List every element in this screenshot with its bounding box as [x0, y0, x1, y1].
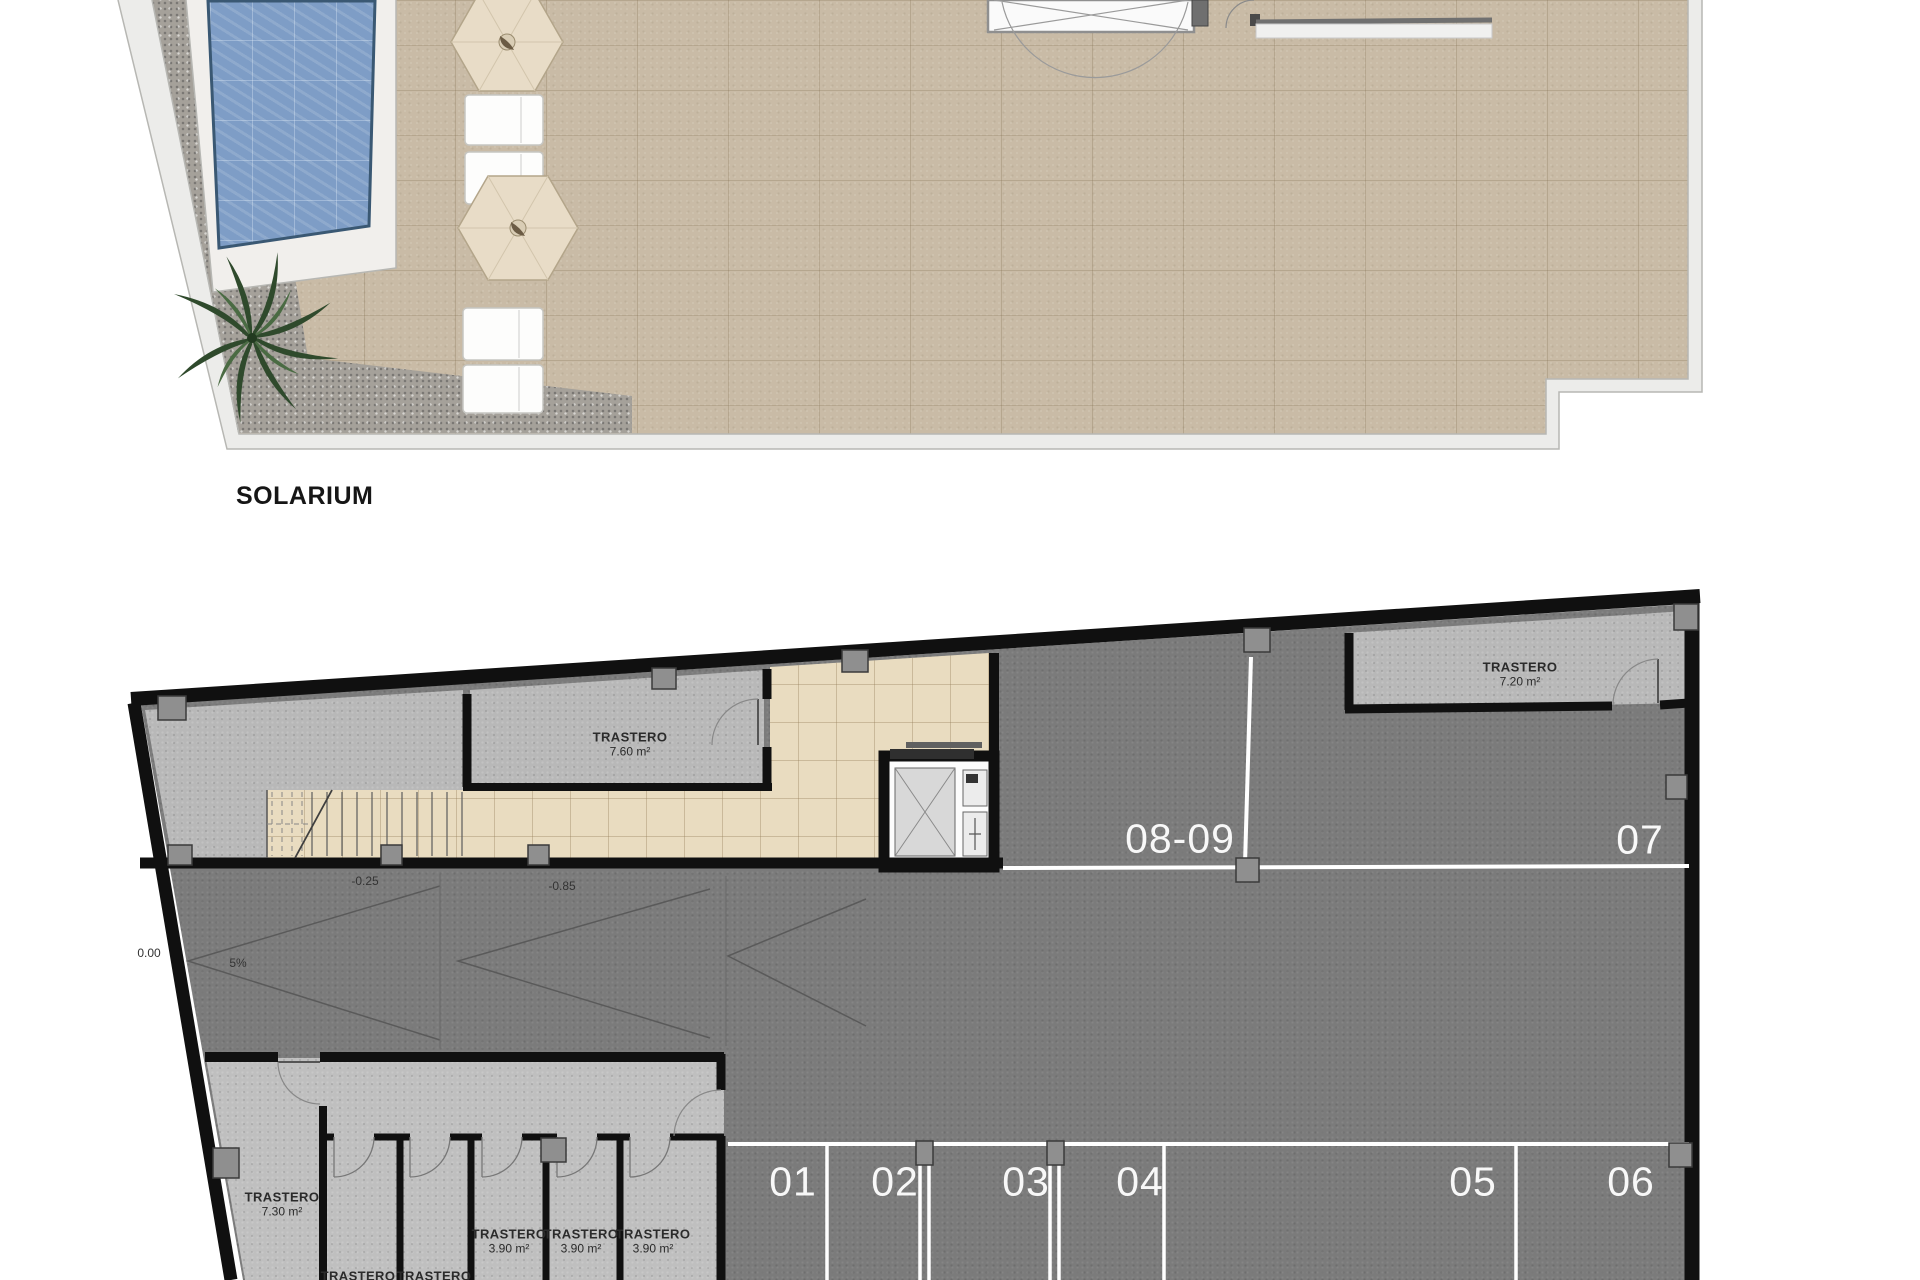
label-trastero-small-1: TRASTERO — [321, 1269, 396, 1280]
label-trastero-390-2: TRASTERO 3.90 m² — [544, 1227, 619, 1256]
stall-02-label: 02 — [871, 1159, 919, 1206]
stairs-icon — [267, 790, 462, 858]
stall-07-label: 07 — [1616, 817, 1664, 864]
stall-05-label: 05 — [1449, 1159, 1497, 1206]
label-trastero-small-2: TRASTERO — [397, 1269, 472, 1280]
solarium-outline — [118, 0, 1702, 449]
parasol-icon-top — [451, 0, 563, 91]
solarium-title: SOLARIUM — [236, 482, 373, 511]
label-trastero-730: TRASTERO 7.30 m² — [245, 1190, 320, 1219]
elevator-icon — [884, 742, 994, 867]
plan-linework — [0, 0, 1920, 1280]
stall-04-label: 04 — [1116, 1159, 1164, 1206]
level-upper-label: -0.25 — [351, 874, 378, 888]
ramp-chevron-icons — [188, 874, 866, 1048]
label-trastero-720: TRASTERO 7.20 m² — [1483, 660, 1558, 689]
label-trastero-760: TRASTERO 7.60 m² — [593, 730, 668, 759]
door-arc-icons — [278, 659, 1658, 1177]
skylight-icon — [988, 0, 1492, 78]
structural-pillars — [158, 604, 1698, 1178]
level-lower-label: -0.85 — [548, 879, 575, 893]
ramp-slope-label: 5% — [229, 956, 246, 970]
stall-03-label: 03 — [1002, 1159, 1050, 1206]
floor-plan-sheet: SOLARIUM TRASTERO 7.60 m² TRASTERO 7.20 … — [0, 0, 1920, 1280]
label-trastero-390-3: TRASTERO 3.90 m² — [616, 1227, 691, 1256]
stall-06-label: 06 — [1607, 1159, 1655, 1206]
stall-01-label: 01 — [769, 1159, 817, 1206]
level-ground-label: 0.00 — [137, 946, 160, 960]
plant-icon — [174, 252, 338, 423]
label-trastero-390-1: TRASTERO 3.90 m² — [472, 1227, 547, 1256]
pool-outline-icon — [208, 1, 375, 248]
stall-08-09-label: 08-09 — [1125, 816, 1235, 863]
